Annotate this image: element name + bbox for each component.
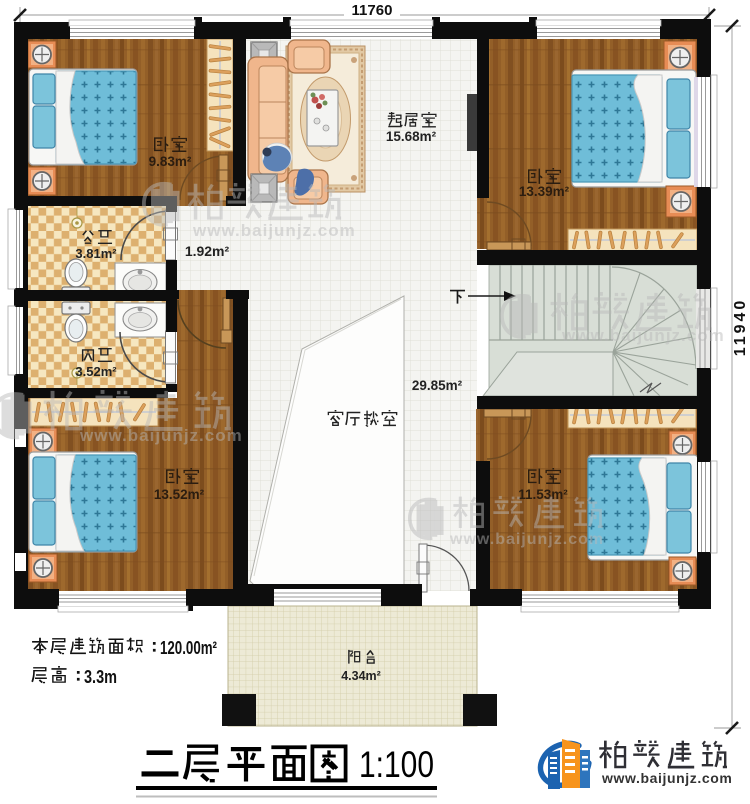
svg-text:11760: 11760 — [352, 2, 393, 19]
svg-text:3.81m²: 3.81m² — [75, 246, 117, 261]
svg-text:120.00m²: 120.00m² — [160, 638, 217, 658]
svg-text:www.baijunjz.com: www.baijunjz.com — [561, 326, 725, 345]
svg-text:3.52m²: 3.52m² — [75, 364, 117, 379]
svg-text:4.34m²: 4.34m² — [341, 669, 381, 683]
svg-text:www.baijunjz.com: www.baijunjz.com — [601, 770, 732, 786]
svg-text:www.baijunjz.com: www.baijunjz.com — [192, 221, 356, 240]
svg-text:13.39m²: 13.39m² — [519, 184, 570, 199]
svg-text:29.85m²: 29.85m² — [412, 378, 463, 393]
svg-text:1.92m²: 1.92m² — [185, 243, 230, 259]
svg-text:11.53m²: 11.53m² — [518, 487, 568, 502]
svg-text:11940: 11940 — [732, 298, 749, 357]
svg-text:www.baijunjz.com: www.baijunjz.com — [79, 426, 243, 445]
svg-text:15.68m²: 15.68m² — [386, 129, 437, 144]
svg-text:13.52m²: 13.52m² — [154, 487, 205, 502]
svg-text:9.83m²: 9.83m² — [149, 154, 192, 169]
svg-text:1:100: 1:100 — [359, 744, 434, 785]
svg-text:www.baijunjz.com: www.baijunjz.com — [449, 531, 604, 548]
svg-text:3.3m: 3.3m — [84, 667, 117, 687]
